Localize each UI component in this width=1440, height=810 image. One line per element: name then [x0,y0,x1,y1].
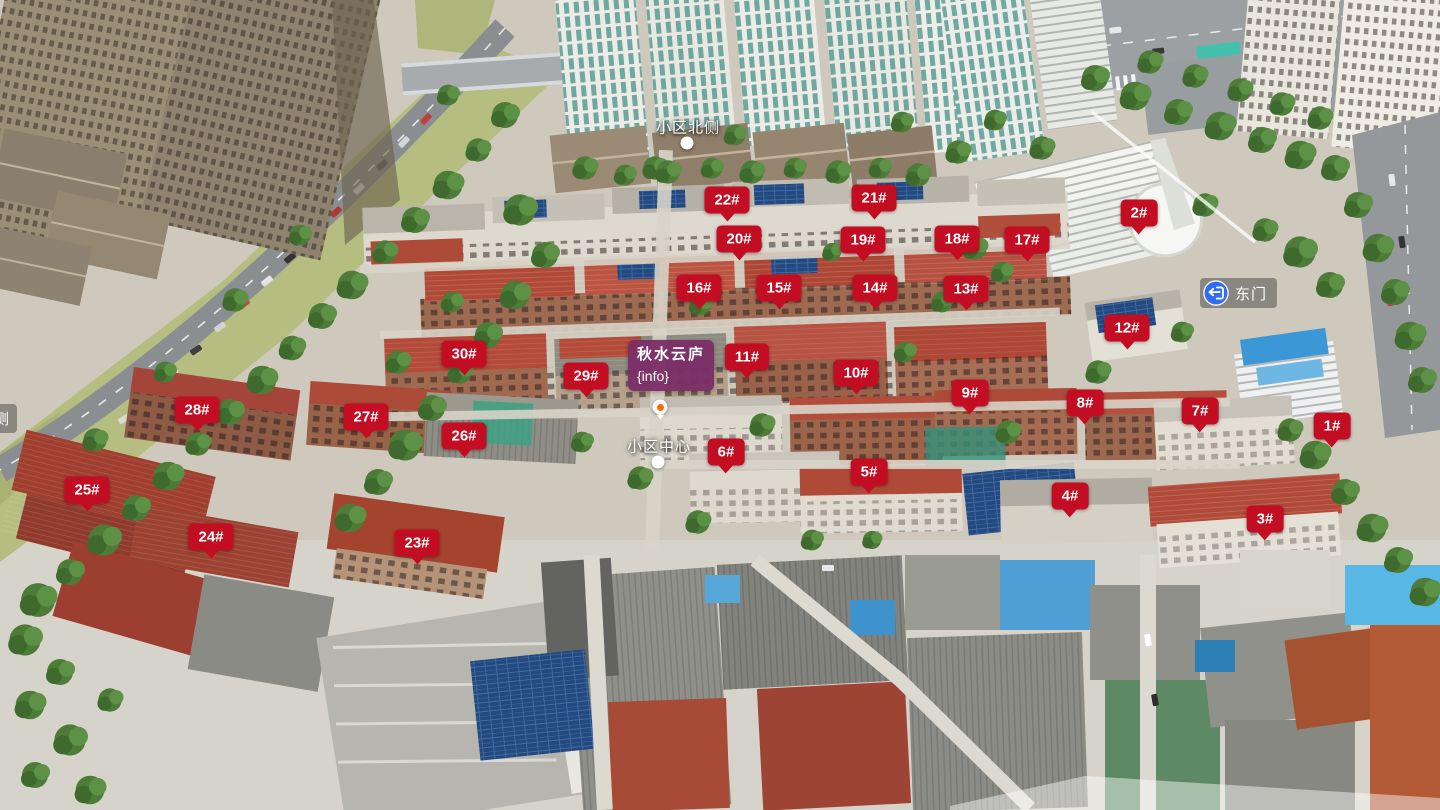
project-info-placeholder: {info} [637,367,705,385]
project-name: 秋水云庐 [637,346,705,364]
building-marker-21[interactable]: 21# [851,185,896,212]
building-marker-12[interactable]: 12# [1104,315,1149,342]
building-marker-16[interactable]: 16# [676,275,721,302]
poi-dot-north-side[interactable] [681,137,694,150]
building-marker-4[interactable]: 4# [1052,483,1089,510]
aerial-viewer: 1#2#3#4#5#6#7#8#9#10#11#12#13#14#15#16#1… [0,0,1440,810]
building-marker-6[interactable]: 6# [708,439,745,466]
project-location-pin[interactable] [653,400,668,415]
building-marker-13[interactable]: 13# [943,276,988,303]
poi-label-community-center[interactable]: 小区中心 [627,436,691,457]
building-marker-22[interactable]: 22# [704,187,749,214]
building-marker-17[interactable]: 17# [1004,227,1049,254]
building-marker-28[interactable]: 28# [174,397,219,424]
east-gate-label: 东门 [1235,283,1267,304]
building-marker-30[interactable]: 30# [441,341,486,368]
building-marker-25[interactable]: 25# [64,477,109,504]
project-info-label[interactable]: 秋水云庐 {info} [628,340,714,391]
building-marker-10[interactable]: 10# [833,360,878,387]
building-marker-24[interactable]: 24# [188,524,233,551]
poi-label-north-side[interactable]: 小区北侧 [656,117,720,138]
east-gate-chip[interactable]: 东门 [1200,278,1277,308]
building-marker-18[interactable]: 18# [934,226,979,253]
building-marker-29[interactable]: 29# [563,363,608,390]
poi-dot-community-center[interactable] [652,456,665,469]
building-marker-3[interactable]: 3# [1247,506,1284,533]
building-marker-9[interactable]: 9# [952,380,989,407]
building-marker-14[interactable]: 14# [852,275,897,302]
building-marker-11[interactable]: 11# [725,344,769,371]
building-marker-26[interactable]: 26# [441,423,486,450]
building-marker-2[interactable]: 2# [1121,200,1158,227]
enter-gate-icon [1203,280,1229,306]
building-marker-23[interactable]: 23# [394,530,439,557]
building-marker-15[interactable]: 15# [756,275,801,302]
building-marker-5[interactable]: 5# [851,459,888,486]
building-marker-8[interactable]: 8# [1067,390,1104,417]
building-marker-20[interactable]: 20# [716,226,761,253]
building-marker-27[interactable]: 27# [343,404,388,431]
building-marker-19[interactable]: 19# [840,227,885,254]
west-edge-chip[interactable]: 侧 [0,404,17,433]
building-marker-7[interactable]: 7# [1182,398,1219,425]
building-marker-1[interactable]: 1# [1314,413,1351,440]
